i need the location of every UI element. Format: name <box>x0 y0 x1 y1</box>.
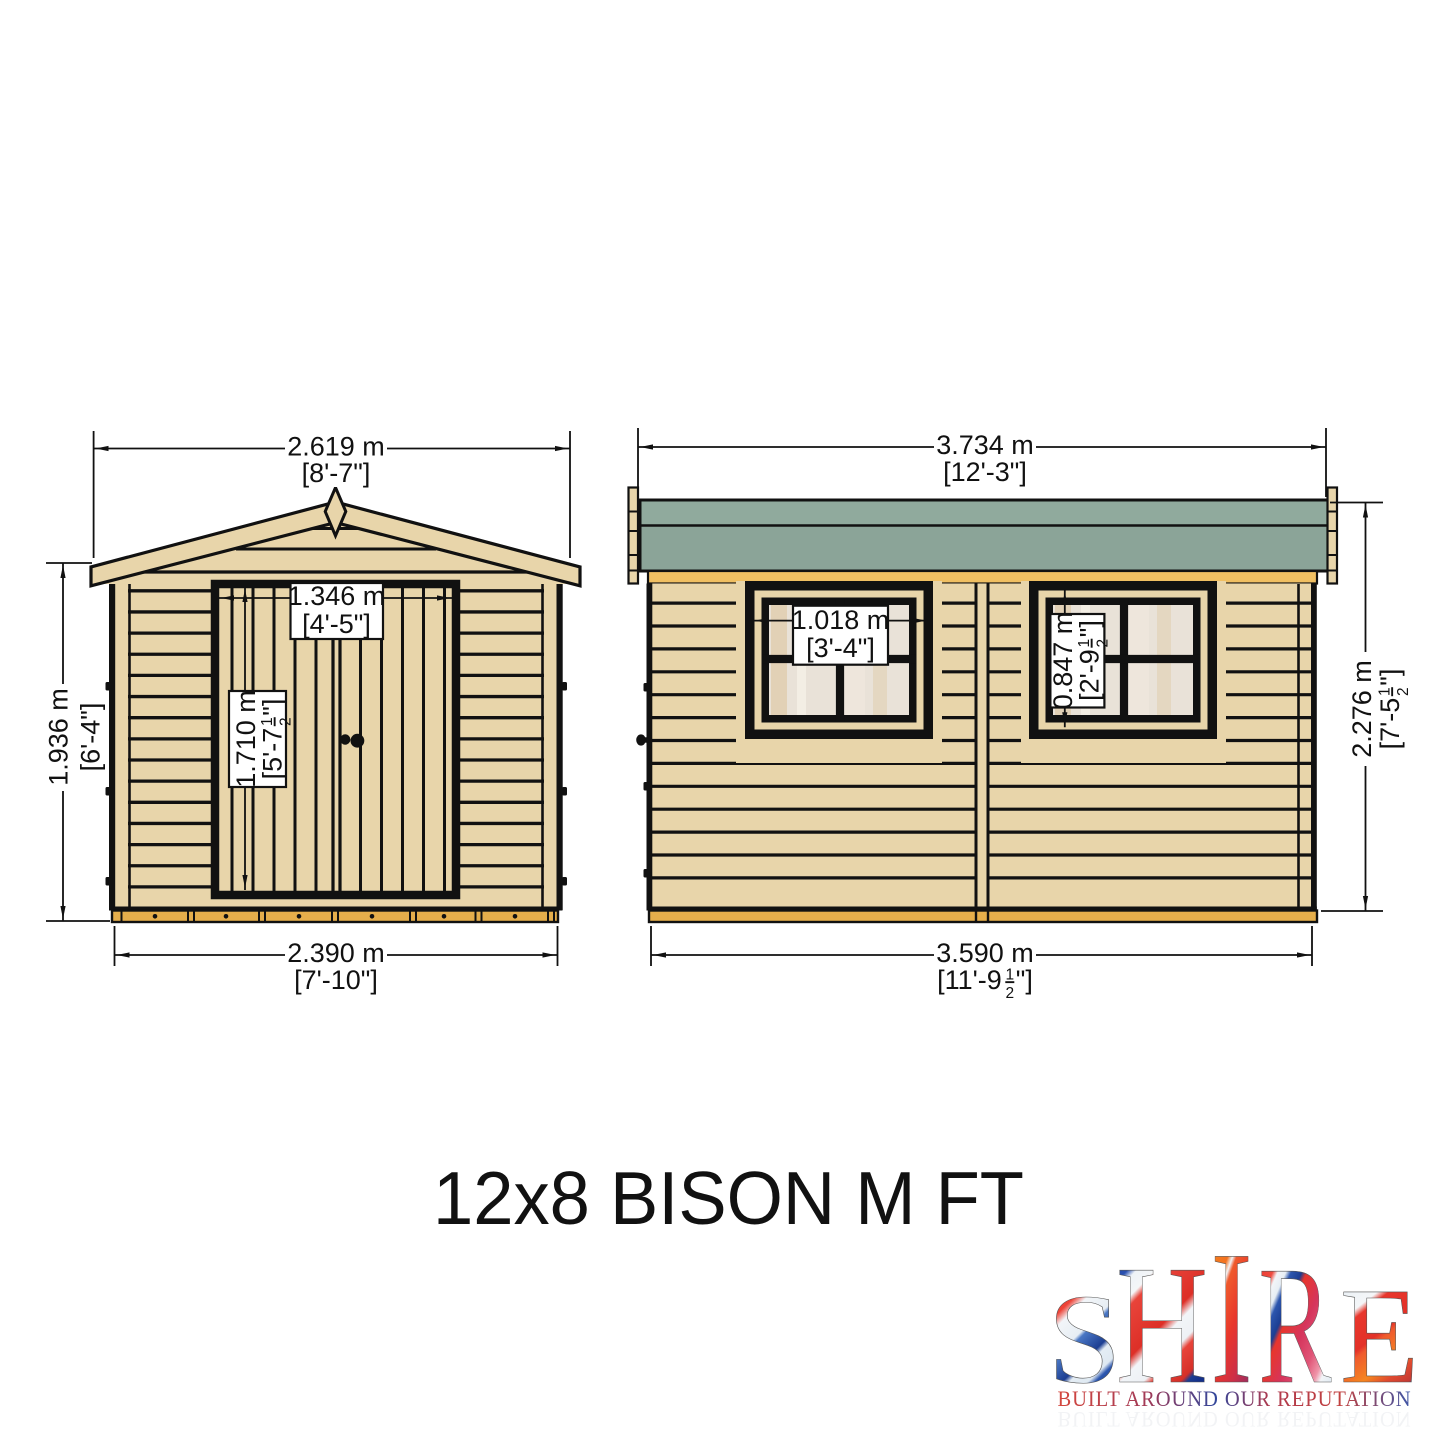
svg-text:2: 2 <box>1395 687 1412 696</box>
svg-text:2: 2 <box>1095 639 1112 648</box>
svg-text:1.018 m: 1.018 m <box>792 605 890 635</box>
svg-text:1.936 m: 1.936 m <box>44 688 74 786</box>
svg-text:1.346 m: 1.346 m <box>288 581 386 611</box>
svg-text:2: 2 <box>1005 985 1014 1002</box>
svg-text:"]: "] <box>258 699 288 716</box>
svg-text:[3'-4"]: [3'-4"] <box>806 633 875 663</box>
svg-text:3.734 m: 3.734 m <box>936 430 1034 460</box>
svg-text:[2'-9: [2'-9 <box>1075 649 1105 701</box>
svg-text:1.710 m: 1.710 m <box>231 690 261 788</box>
svg-text:2.390 m: 2.390 m <box>287 938 385 968</box>
svg-text:[6'-4"]: [6'-4"] <box>76 703 106 772</box>
svg-text:2.619 m: 2.619 m <box>287 432 385 462</box>
svg-text:1: 1 <box>1377 687 1394 696</box>
svg-text:[11'-9: [11'-9 <box>937 965 1002 995</box>
svg-text:[5'-7: [5'-7 <box>258 728 288 780</box>
svg-text:[7'-10"]: [7'-10"] <box>294 965 378 995</box>
svg-text:[8'-7"]: [8'-7"] <box>302 458 371 488</box>
svg-text:"]: "] <box>1375 669 1405 686</box>
svg-text:12x8 BISON M FT: 12x8 BISON M FT <box>433 1156 1024 1240</box>
svg-text:0.847 m: 0.847 m <box>1048 612 1078 710</box>
svg-text:3.590 m: 3.590 m <box>936 938 1034 968</box>
svg-text:BUILT AROUND OUR REPUTATION: BUILT AROUND OUR REPUTATION <box>1058 1407 1412 1432</box>
svg-text:[7'-5: [7'-5 <box>1375 698 1405 750</box>
svg-text:[4'-5"]: [4'-5"] <box>302 609 371 639</box>
svg-text:1: 1 <box>1005 967 1014 984</box>
svg-text:"]: "] <box>1016 965 1033 995</box>
svg-text:1: 1 <box>259 717 276 726</box>
svg-text:"]: "] <box>1075 620 1105 637</box>
svg-text:2.276 m: 2.276 m <box>1347 660 1377 758</box>
svg-text:2: 2 <box>278 717 295 726</box>
svg-text:1: 1 <box>1076 639 1093 648</box>
svg-text:[12'-3"]: [12'-3"] <box>943 457 1027 487</box>
